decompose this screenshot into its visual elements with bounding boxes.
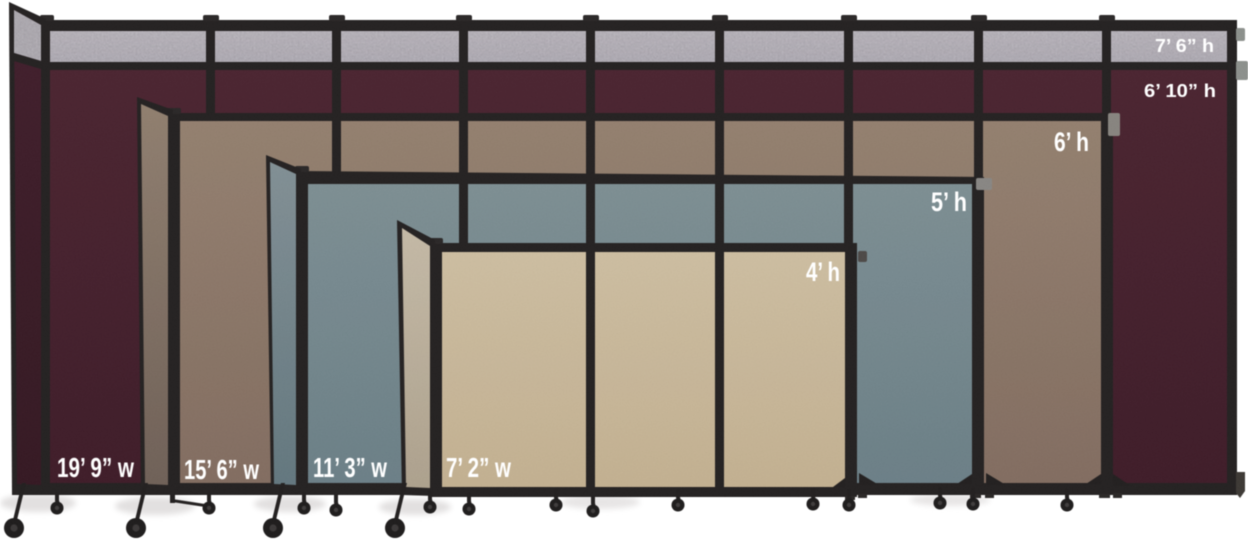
svg-text:19’ 9” w: 19’ 9” w xyxy=(57,452,134,483)
svg-text:5’ h: 5’ h xyxy=(931,187,967,217)
svg-text:6’ 10” h: 6’ 10” h xyxy=(1144,81,1216,101)
svg-text:11’ 3” w: 11’ 3” w xyxy=(313,452,387,483)
svg-text:7’ 2” w: 7’ 2” w xyxy=(446,452,511,483)
svg-text:7’ 6” h: 7’ 6” h xyxy=(1155,36,1214,56)
svg-text:4’ h: 4’ h xyxy=(806,257,840,287)
svg-text:15’ 6” w: 15’ 6” w xyxy=(184,454,259,485)
svg-text:6’ h: 6’ h xyxy=(1054,127,1089,157)
